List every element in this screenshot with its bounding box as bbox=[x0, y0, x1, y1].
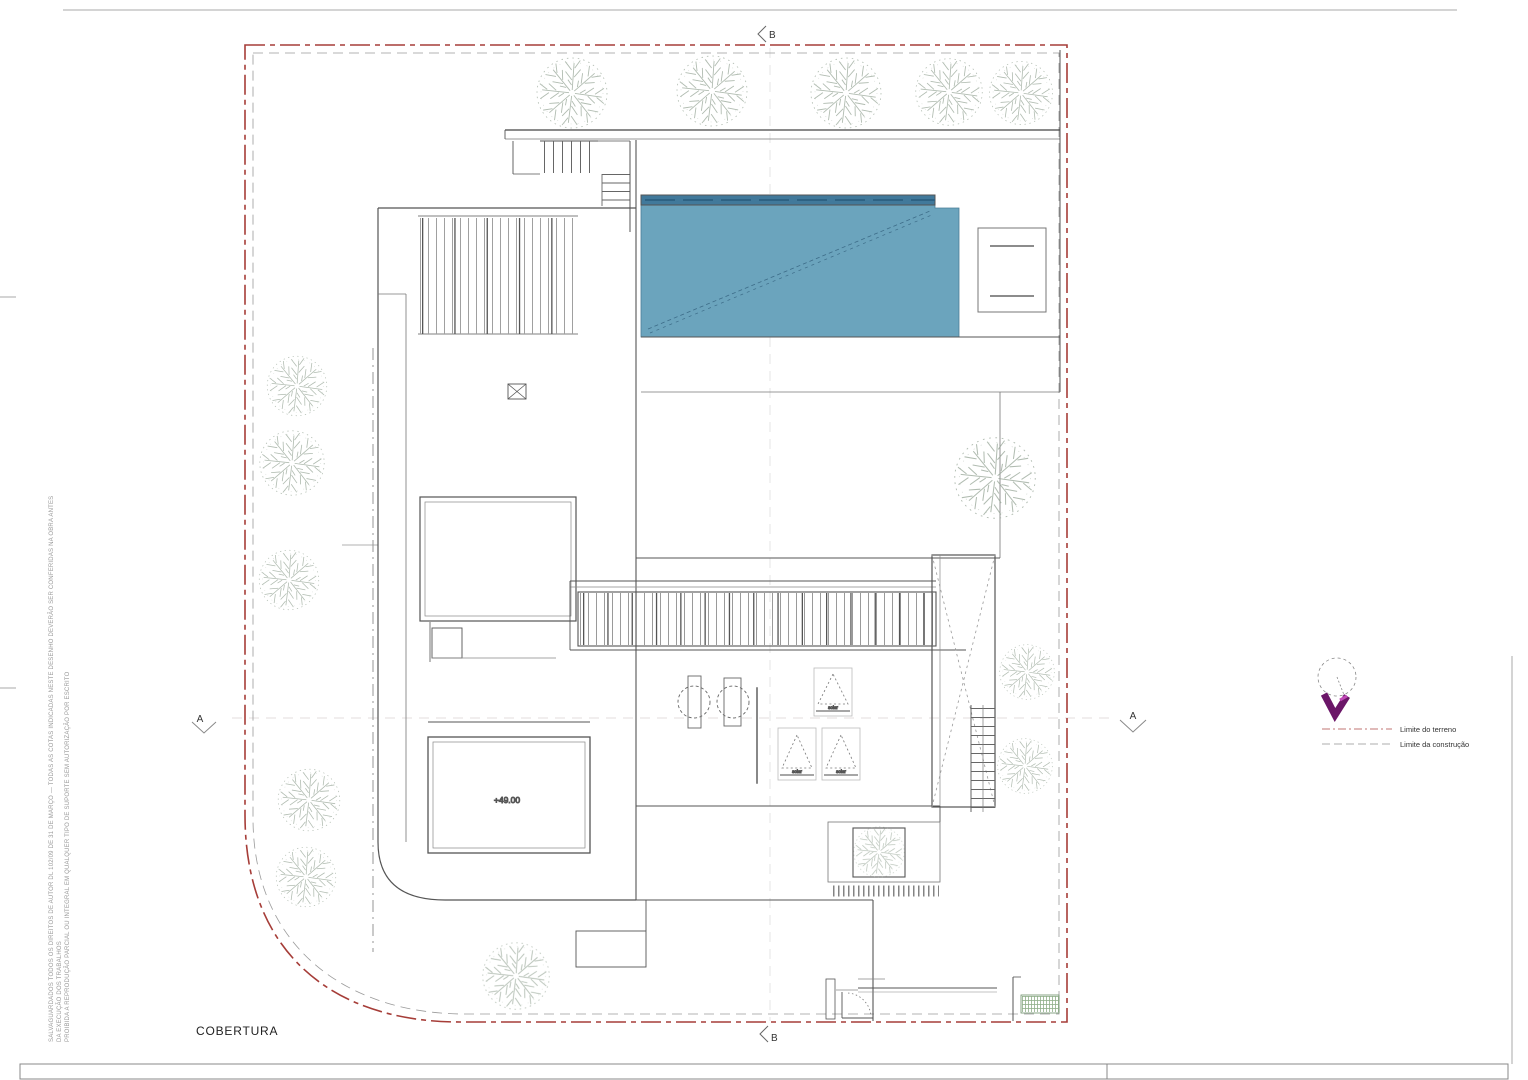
legend-construction-limit: Limite da construção bbox=[1322, 740, 1469, 749]
deck-band bbox=[445, 581, 966, 900]
level-room: +49.00 bbox=[428, 722, 590, 853]
equipment-box bbox=[978, 228, 1046, 312]
disclaimer-line: PROIBIDA A REPRODUÇÃO PARCIAL OU INTEGRA… bbox=[64, 572, 72, 1042]
terrain-limit-line bbox=[245, 45, 1067, 1022]
svg-text:A: A bbox=[197, 714, 204, 725]
disclaimer-text: SALVAGUARDADOS TODOS OS DIREITOS DE AUTO… bbox=[48, 572, 72, 1042]
legend-terrain-limit: Limite do terreno bbox=[1322, 725, 1456, 734]
legend-construction-label: Limite da construção bbox=[1400, 740, 1469, 749]
roof-hatch bbox=[508, 384, 526, 399]
solar-label: solar bbox=[828, 705, 838, 710]
louvre-skylight bbox=[418, 216, 578, 334]
section-marker-a-right: A bbox=[1120, 711, 1146, 732]
section-marker-b-top: B bbox=[758, 26, 776, 42]
svg-text:A: A bbox=[1130, 711, 1137, 722]
east-panel bbox=[932, 555, 995, 822]
level-label: +49.00 bbox=[494, 795, 521, 805]
section-lines bbox=[232, 48, 1112, 1021]
entry-stairs bbox=[513, 141, 630, 232]
solar-panel: solar bbox=[822, 728, 860, 780]
section-markers: B B A A bbox=[192, 26, 1146, 1044]
chimney-vents bbox=[678, 676, 757, 783]
legend: Limite do terreno Limite da construção bbox=[1322, 725, 1469, 749]
north-arrow bbox=[1318, 658, 1356, 715]
section-marker-b-bottom: B bbox=[760, 1026, 778, 1044]
sheet-frame bbox=[0, 10, 1512, 1079]
site-boundary bbox=[245, 45, 1067, 1022]
building: +49.00 bbox=[378, 50, 1060, 1021]
solar-label: solar bbox=[792, 769, 802, 774]
disclaimer-line: DA EXECUÇÃO DOS TRABALHOS bbox=[56, 572, 64, 1042]
east-stair bbox=[971, 705, 983, 812]
svg-text:B: B bbox=[771, 1033, 778, 1044]
svg-text:B: B bbox=[769, 30, 776, 41]
section-marker-a-left: A bbox=[192, 714, 216, 733]
green-planter bbox=[1021, 995, 1059, 1013]
solar-panels: solar solar solar bbox=[778, 668, 860, 780]
solar-panel: solar bbox=[778, 728, 816, 780]
left-wing: +49.00 bbox=[378, 140, 646, 967]
pool-terrace bbox=[636, 337, 1060, 558]
south-walls bbox=[826, 900, 1059, 1021]
drawing-title: COBERTURA bbox=[196, 1024, 278, 1038]
solar-panel: solar bbox=[814, 668, 852, 716]
legend-terrain-label: Limite do terreno bbox=[1400, 725, 1456, 734]
disclaimer-line: SALVAGUARDADOS TODOS OS DIREITOS DE AUTO… bbox=[48, 572, 56, 1042]
swimming-pool bbox=[641, 195, 959, 337]
solar-label: solar bbox=[836, 769, 846, 774]
upper-room bbox=[420, 497, 576, 662]
roof-plan-svg: +49.00 bbox=[0, 0, 1528, 1080]
drawing-sheet: +49.00 bbox=[0, 0, 1528, 1080]
